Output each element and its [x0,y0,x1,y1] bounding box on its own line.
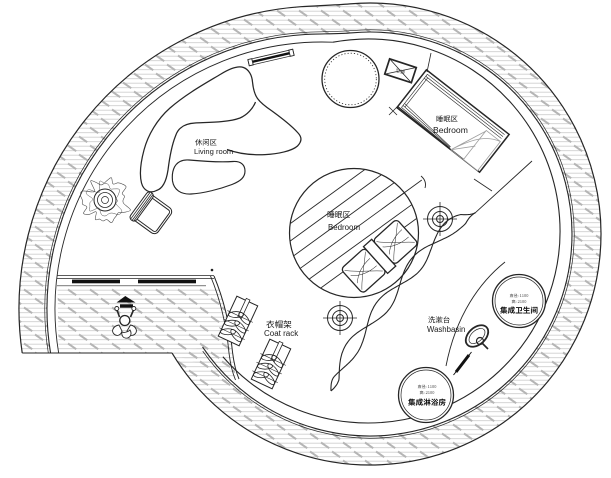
svg-text:Bedroom: Bedroom [328,223,360,232]
svg-text:Living room: Living room [194,147,233,156]
svg-text:Coat rack: Coat rack [264,329,299,338]
svg-text:Bedroom: Bedroom [433,125,468,135]
svg-text:Washbasin: Washbasin [427,325,465,334]
